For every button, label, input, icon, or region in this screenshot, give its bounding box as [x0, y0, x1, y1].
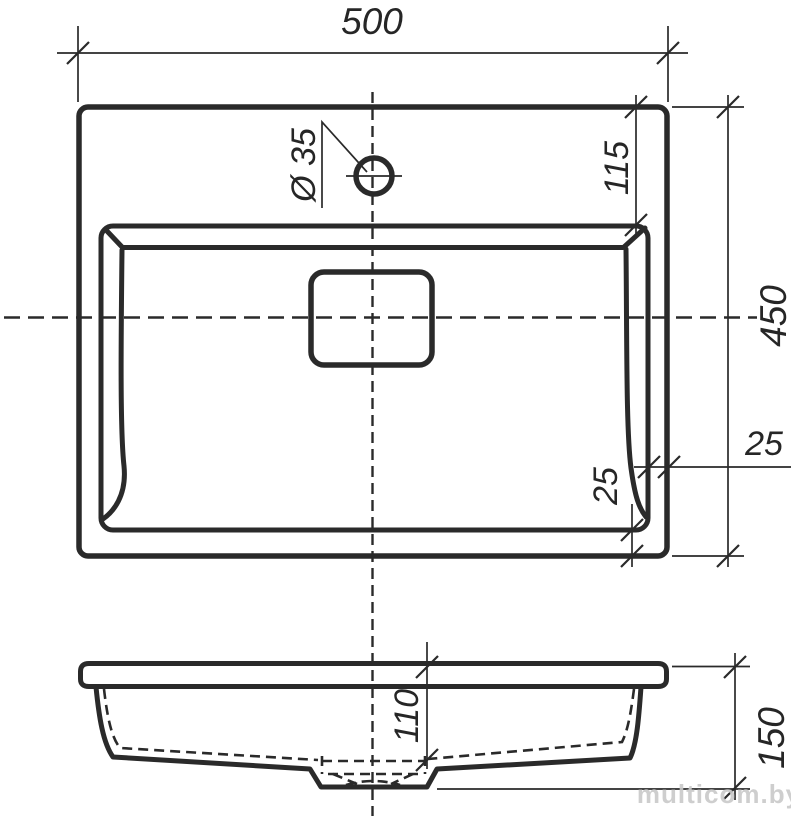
dim-hole-diameter-label: Ø 35	[285, 128, 323, 203]
basin-wall-curve-left	[103, 250, 124, 519]
section-bowl-outer-profile	[96, 687, 641, 787]
dim-overall-width-label: 500	[341, 1, 403, 42]
section-bowl-inner-left	[104, 689, 318, 760]
basin-rim-chamfer-right	[624, 228, 645, 247]
watermark-text: multicom.by	[637, 779, 791, 809]
dimensions: 500 115 450 25	[57, 1, 791, 800]
dim-rim-offset-right: 25	[634, 425, 791, 478]
technical-drawing-page: 500 115 450 25	[0, 0, 791, 817]
faucet-callout-leader	[322, 122, 367, 208]
section-bowl-inner-right	[428, 689, 634, 759]
centerlines	[4, 92, 757, 816]
dim-bowl-depth-label: 110	[388, 689, 426, 743]
basin-rim-chamfer-left	[106, 230, 123, 248]
basin-wall-curve-right	[626, 249, 646, 517]
dim-overall-depth-label: 450	[753, 285, 791, 347]
dim-hole-offset-label: 115	[598, 141, 636, 195]
washbasin-drawing: 500 115 450 25	[0, 0, 791, 817]
dim-rim-offset-right-label: 25	[744, 425, 783, 463]
dim-overall-depth: 450	[672, 95, 791, 567]
dim-hole-offset: 115	[598, 95, 647, 236]
dim-overall-height: 150	[437, 653, 791, 800]
dim-rim-offset-bottom-label: 25	[587, 467, 625, 506]
dim-overall-width: 500	[57, 1, 688, 102]
dim-overall-height-label: 150	[751, 707, 791, 769]
